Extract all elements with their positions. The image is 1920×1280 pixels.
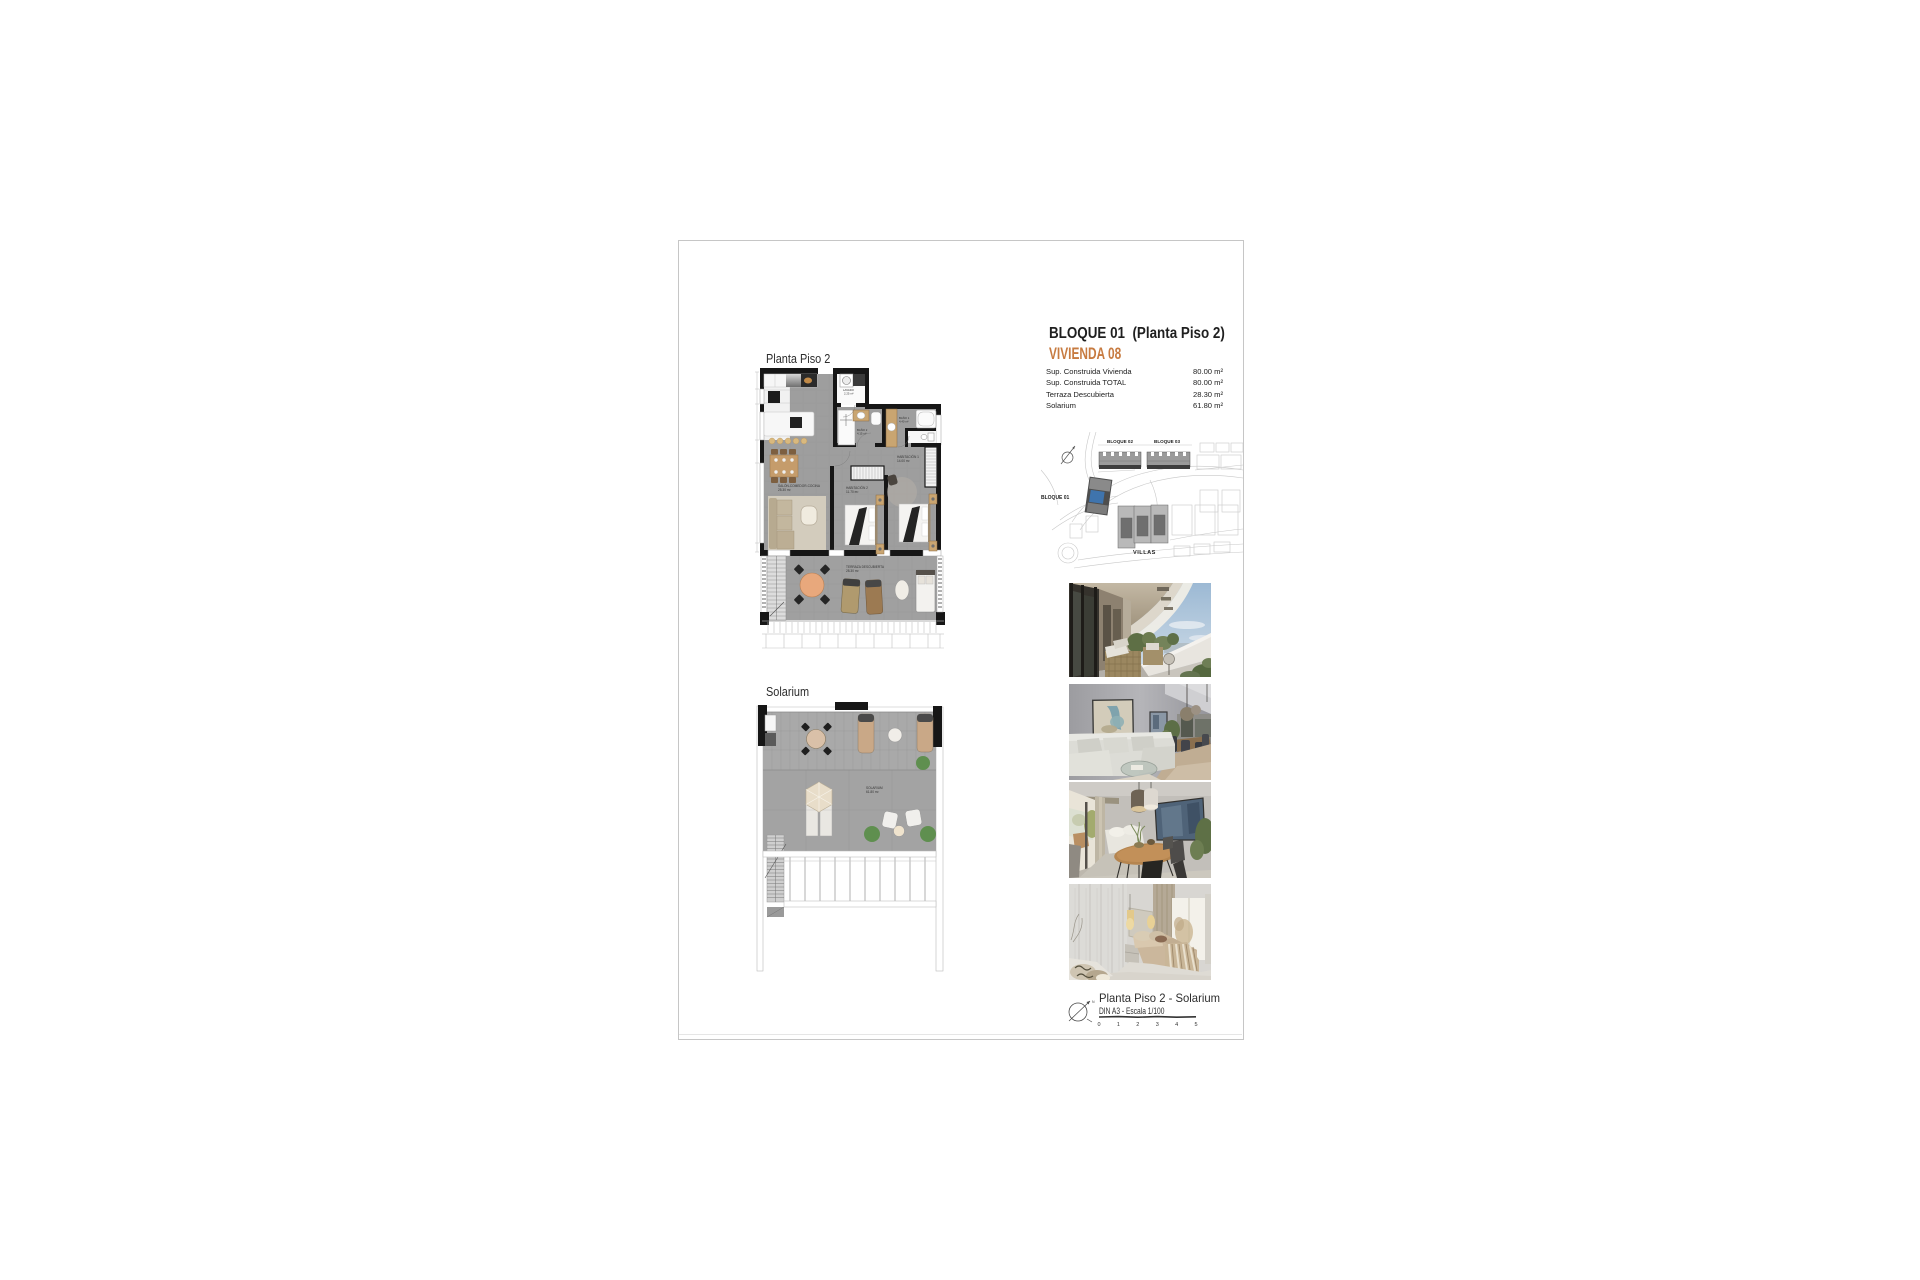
svg-text:11.70 m²: 11.70 m² <box>846 490 858 494</box>
svg-text:4.15 m²: 4.15 m² <box>857 432 867 436</box>
svg-text:28.30 m²: 28.30 m² <box>846 569 859 573</box>
svg-text:2: 2 <box>1136 1022 1139 1028</box>
svg-text:VILLAS: VILLAS <box>1133 550 1156 556</box>
svg-text:2.25 m²: 2.25 m² <box>844 392 854 396</box>
svg-text:N: N <box>1092 1000 1095 1004</box>
svg-text:BLOQUE 01: BLOQUE 01 <box>1041 495 1070 501</box>
svg-text:5: 5 <box>1195 1022 1198 1028</box>
svg-text:1: 1 <box>1117 1022 1120 1028</box>
svg-text:BLOQUE 03: BLOQUE 03 <box>1154 439 1180 444</box>
svg-text:4: 4 <box>1175 1022 1178 1028</box>
svg-text:BLOQUE 02: BLOQUE 02 <box>1107 439 1133 444</box>
svg-text:3: 3 <box>1156 1022 1159 1028</box>
svg-text:14.00 m²: 14.00 m² <box>897 459 910 463</box>
svg-text:4.40 m²: 4.40 m² <box>899 420 909 424</box>
svg-text:25.30 m²: 25.30 m² <box>778 488 791 492</box>
svg-text:0: 0 <box>1098 1022 1101 1028</box>
svg-text:61.80 m²: 61.80 m² <box>866 790 879 794</box>
